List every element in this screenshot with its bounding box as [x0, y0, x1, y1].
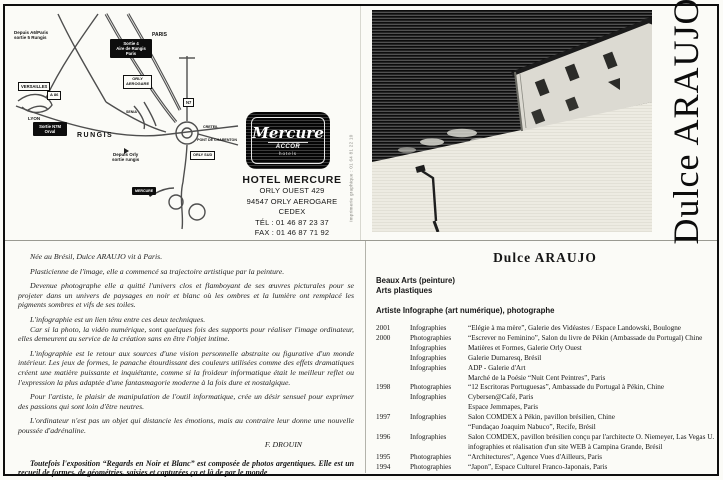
bio-paragraph: Car si la photo, la vidéo numérique, son…: [18, 325, 354, 344]
cv-row: 1997 Infographies Salon COMDEX à Pékin, …: [376, 413, 714, 423]
map-label: PARIS: [152, 32, 167, 38]
cv-type: Photographies: [410, 463, 468, 473]
biography-text: Née au Brésil, Dulce ARAUJO vit à Paris.…: [8, 247, 360, 478]
cv-year: 2000: [376, 334, 410, 344]
cv-row: 1995 Photographies “Architectures”, Agen…: [376, 453, 714, 463]
hotel-address-line1: ORLY OUEST 429: [236, 186, 348, 197]
cv-year: [376, 423, 410, 433]
cv-row: Marché de la Poésie “Nuit Cent Peintres”…: [376, 374, 714, 384]
cv-type: Infographies: [410, 324, 468, 334]
cv-year: 1994: [376, 463, 410, 473]
cv-desc: “Japon”, Espace Culturel Franco-Japonais…: [468, 463, 714, 473]
bio-paragraph: Plasticienne de l'image, elle a commencé…: [18, 267, 354, 277]
photo-building-sky: [372, 10, 652, 232]
map-label: PONT DE CHARENTON: [195, 138, 239, 142]
cv-type: Infographies: [410, 413, 468, 423]
access-map: Depuis A6/Paris sortie 5 Rungis PARIS So…: [6, 6, 241, 235]
cv-heading: Arts plastiques: [376, 286, 714, 296]
bio-paragraph: L'infographie est un lien ténu entre ces…: [18, 315, 354, 325]
cv-type: Infographies: [410, 344, 468, 354]
map-label: MERCURE: [132, 187, 156, 195]
fold-line-vertical-top: [360, 6, 361, 240]
cv-desc: Matières et Formes, Galerie Orly Ouest: [468, 344, 714, 354]
cv-desc: Galerie Dumaresq, Brésil: [468, 354, 714, 364]
signature: F. DROUIN: [18, 440, 302, 450]
bio-paragraph: Devenue photographe elle a quitté l'univ…: [18, 281, 354, 310]
map-label: SENIA: [126, 110, 137, 114]
curriculum-block: Dulce ARAUJO Beaux Arts (peinture) Arts …: [368, 246, 718, 473]
cv-desc: Cybersen@Café, Paris: [468, 393, 714, 403]
cv-row: Infographies ADP - Galerie d'Art: [376, 364, 714, 374]
cv-type: Photographies: [410, 334, 468, 344]
cv-row: Infographies Galerie Dumaresq, Brésil: [376, 354, 714, 364]
map-label: RUNGIS: [77, 132, 113, 140]
cv-row: 1996 Infographies Salon COMDEX, pavillon…: [376, 433, 714, 443]
cv-year: [376, 443, 410, 453]
cv-desc: “Fundaçao Joaquim Nabuco”, Recife, Brési…: [468, 423, 714, 433]
fold-line-horizontal: [5, 240, 717, 241]
cv-row: Infographies Cybersen@Café, Paris: [376, 393, 714, 403]
accor-hotels-label: hotels: [279, 151, 297, 156]
map-label: Sortie 4 Aire de Rungis Paris: [110, 39, 152, 58]
cv-row: 1998 Photographies “12 Escritoras Portug…: [376, 383, 714, 393]
cv-row: 2001 Infographies “Elégie à ma mère”, Ga…: [376, 324, 714, 334]
cv-year: 1997: [376, 413, 410, 423]
cv-desc: “Elégie à ma mère”, Galerie des Vidéaste…: [468, 324, 714, 334]
cv-year: 1996: [376, 433, 410, 443]
map-label: CRETEIL: [203, 125, 218, 129]
hotel-fax: FAX : 01 46 87 71 92: [236, 228, 348, 239]
map-label: ORLY SUD: [190, 151, 215, 160]
hotel-name: HOTEL MERCURE: [236, 174, 348, 186]
cv-desc: “12 Escritoras Portuguesas”, Ambassade d…: [468, 383, 714, 393]
cv-type: Infographies: [410, 433, 468, 443]
cv-type: [410, 374, 468, 384]
cv-type: [410, 403, 468, 413]
cv-artist-title: Dulce ARAUJO: [376, 250, 714, 266]
cv-row: infographies et réalisation d'un site WE…: [376, 443, 714, 453]
map-label: N7: [183, 98, 194, 107]
cv-type: [410, 423, 468, 433]
accor-wordmark: ACCOR: [276, 144, 301, 150]
bio-paragraph: Pour l'artiste, le plaisir de manipulati…: [18, 392, 354, 411]
bio-paragraph: L'infographie est le retour aux sources …: [18, 349, 354, 387]
hotel-address-line2: 94547 ORLY AEROGARE CEDEX: [236, 197, 348, 218]
map-label: A 86: [47, 91, 61, 100]
cv-year: [376, 364, 410, 374]
map-label: ORLY AEROGARE: [123, 75, 152, 89]
cv-desc: Salon COMDEX à Pékin, pavillon brésilien…: [468, 413, 714, 423]
cv-row: 1994 Photographies “Japon”, Espace Cultu…: [376, 463, 714, 473]
cv-row: Infographies Matières et Formes, Galerie…: [376, 344, 714, 354]
hotel-phone: TÉL : 01 46 87 23 37: [236, 218, 348, 229]
cv-heading: Beaux Arts (peinture): [376, 276, 714, 286]
cv-year: 1998: [376, 383, 410, 393]
cv-desc: ADP - Galerie d'Art: [468, 364, 714, 374]
cv-type: Infographies: [410, 354, 468, 364]
cv-type: Infographies: [410, 393, 468, 403]
map-label: LYON: [28, 116, 40, 121]
cv-type: Infographies: [410, 364, 468, 374]
hotel-address-block: HOTEL MERCURE ORLY OUEST 429 94547 ORLY …: [236, 174, 348, 239]
brochure-scan: Depuis A6/Paris sortie 5 Rungis PARIS So…: [0, 0, 723, 480]
cv-desc: “Architectures”, Agence Vues d'Ailleurs,…: [468, 453, 714, 463]
cv-year: [376, 344, 410, 354]
cv-desc: “Escrever no Feminino”, Salon du livre d…: [468, 334, 714, 344]
cv-row: “Fundaçao Joaquim Nabuco”, Recife, Brési…: [376, 423, 714, 433]
mercure-wordmark: Mercure: [252, 126, 324, 141]
logo-divider: [268, 142, 308, 143]
bio-paragraph: L'ordinateur n'est pas un objet qui dist…: [18, 416, 354, 435]
cv-year: 1995: [376, 453, 410, 463]
map-label: Depuis A6/Paris sortie 5 Rungis: [14, 30, 48, 41]
map-label: VERSAILLES: [18, 82, 50, 91]
fold-line-vertical-bottom: [365, 241, 366, 473]
artist-name-vertical: Dulce ARAUJO: [668, 0, 704, 244]
cv-type: [410, 443, 468, 453]
cv-type: Photographies: [410, 383, 468, 393]
cv-row: Espace Jemmapes, Paris: [376, 403, 714, 413]
mercure-logo: Mercure ACCOR hotels: [246, 112, 330, 169]
exhibition-footnote: Toutefois l'exposition “Regards en Noir …: [18, 459, 354, 479]
cv-year: [376, 354, 410, 364]
cv-desc: Marché de la Poésie “Nuit Cent Peintres”…: [468, 374, 714, 384]
cv-type: Photographies: [410, 453, 468, 463]
printer-credit-vertical: imprimerie graphique : 01 64 81 22 10: [349, 134, 354, 221]
map-label: Depuis Orly sortie rungis: [112, 152, 139, 163]
cv-row: 2000 Photographies “Escrever no Feminino…: [376, 334, 714, 344]
cv-desc: infographies et réalisation d'un site WE…: [468, 443, 714, 453]
mercure-logo-frame: Mercure ACCOR hotels: [251, 117, 325, 164]
bio-paragraph: Née au Brésil, Dulce ARAUJO vit à Paris.: [18, 252, 354, 262]
cv-desc: Espace Jemmapes, Paris: [468, 403, 714, 413]
cv-year: [376, 403, 410, 413]
cv-year: [376, 374, 410, 384]
cover-photograph: [372, 10, 652, 232]
map-label: Sortie N7M Orval: [33, 122, 67, 136]
cv-role: Artiste Infographe (art numérique), phot…: [376, 306, 714, 316]
cv-desc: Salon COMDEX, pavillon brésilien conçu p…: [468, 433, 714, 443]
cv-year: [376, 393, 410, 403]
cv-year: 2001: [376, 324, 410, 334]
